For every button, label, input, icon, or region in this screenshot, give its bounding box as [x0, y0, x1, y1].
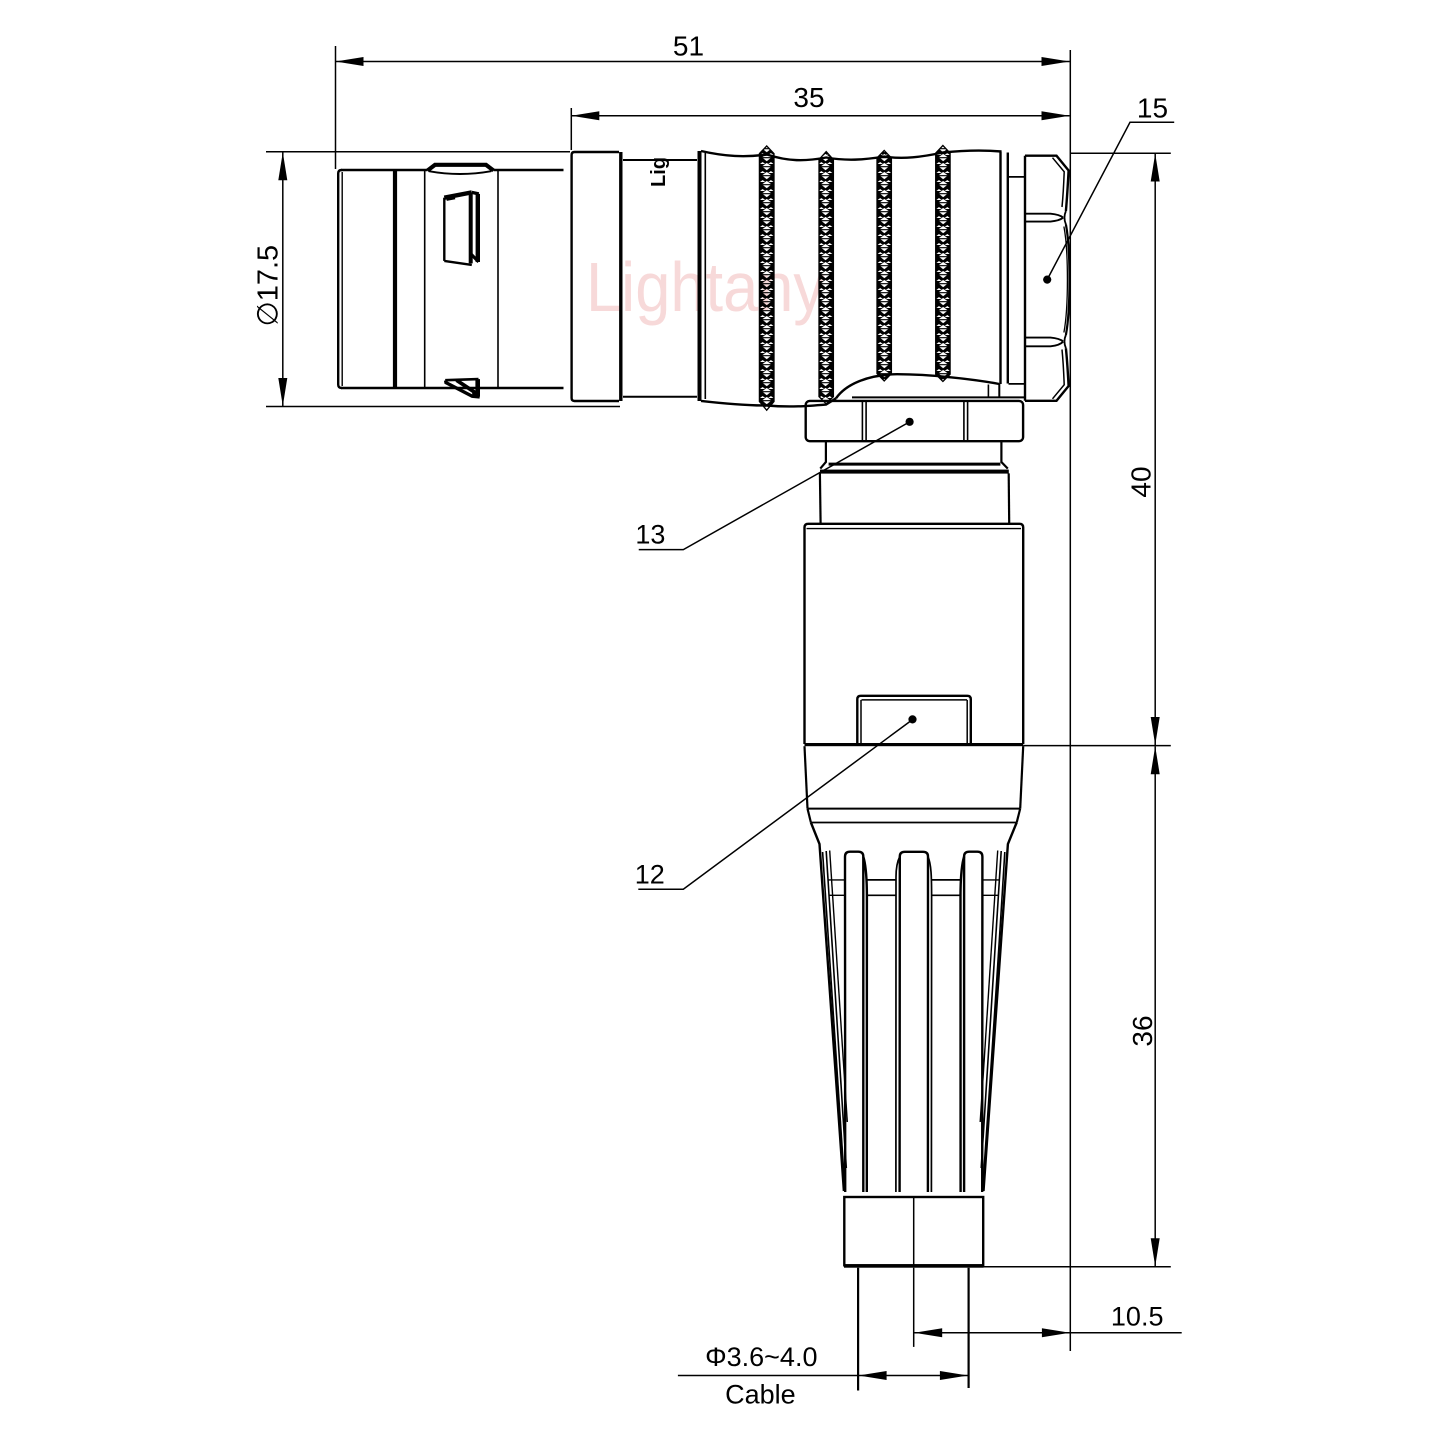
- svg-text:Lig: Lig: [648, 157, 670, 187]
- svg-text:36: 36: [1127, 1015, 1158, 1046]
- svg-text:Cable: Cable: [725, 1380, 796, 1410]
- svg-text:∅17.5: ∅17.5: [253, 245, 285, 327]
- svg-text:35: 35: [793, 82, 824, 113]
- svg-text:10.5: 10.5: [1111, 1302, 1164, 1332]
- svg-text:12: 12: [635, 859, 665, 889]
- svg-text:40: 40: [1126, 466, 1157, 497]
- svg-text:13: 13: [635, 520, 665, 550]
- svg-text:Φ3.6~4.0: Φ3.6~4.0: [705, 1342, 817, 1372]
- svg-text:15: 15: [1137, 93, 1168, 124]
- svg-text:51: 51: [673, 31, 704, 62]
